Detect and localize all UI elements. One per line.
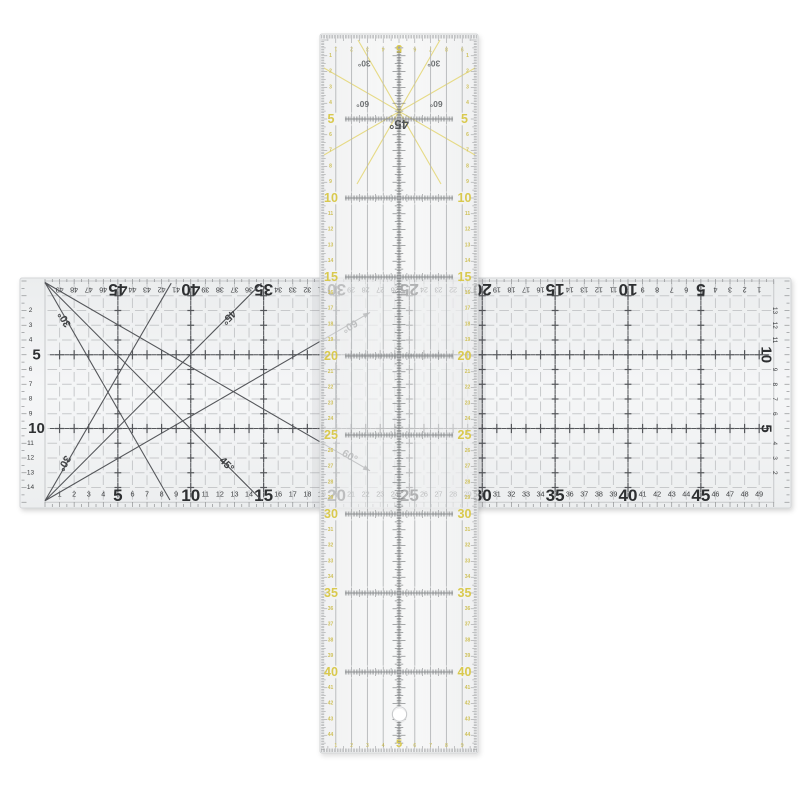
svg-text:33: 33	[289, 286, 297, 295]
svg-text:2: 2	[72, 490, 76, 499]
svg-text:1: 1	[58, 490, 62, 499]
svg-text:10: 10	[458, 191, 472, 205]
svg-text:36: 36	[465, 606, 471, 612]
svg-text:4: 4	[329, 100, 332, 106]
svg-text:39: 39	[328, 653, 334, 659]
svg-text:14: 14	[328, 258, 334, 264]
svg-text:6: 6	[466, 132, 469, 138]
svg-text:16: 16	[537, 286, 545, 295]
svg-text:41: 41	[328, 685, 334, 691]
svg-text:48: 48	[741, 490, 749, 499]
svg-text:36: 36	[328, 606, 334, 612]
svg-text:19: 19	[328, 337, 334, 343]
svg-text:40: 40	[324, 665, 338, 679]
svg-text:13: 13	[465, 242, 471, 248]
svg-text:6: 6	[413, 743, 416, 749]
svg-text:26: 26	[465, 448, 471, 454]
svg-text:11: 11	[610, 286, 617, 295]
svg-text:7: 7	[466, 148, 469, 154]
svg-text:5: 5	[328, 112, 335, 126]
svg-text:34: 34	[537, 490, 545, 499]
svg-text:20: 20	[324, 349, 338, 363]
svg-text:39: 39	[609, 490, 617, 499]
svg-text:13: 13	[27, 469, 35, 476]
svg-text:28: 28	[465, 479, 471, 485]
svg-text:43: 43	[143, 286, 151, 295]
svg-text:32: 32	[465, 543, 471, 549]
svg-text:23: 23	[465, 400, 471, 406]
svg-text:30: 30	[458, 507, 472, 521]
svg-text:25: 25	[458, 428, 472, 442]
svg-text:2: 2	[466, 69, 469, 75]
svg-text:42: 42	[653, 490, 661, 499]
svg-text:8: 8	[655, 286, 659, 295]
svg-text:31: 31	[493, 490, 501, 499]
svg-text:7: 7	[29, 381, 33, 388]
svg-text:37: 37	[230, 286, 238, 295]
svg-text:27: 27	[465, 464, 471, 470]
svg-text:17: 17	[328, 306, 334, 312]
svg-text:7: 7	[670, 286, 674, 295]
svg-text:4: 4	[713, 286, 717, 295]
svg-text:42: 42	[158, 286, 166, 295]
svg-text:16: 16	[274, 490, 282, 499]
svg-text:14: 14	[27, 484, 35, 491]
svg-text:23: 23	[328, 400, 334, 406]
svg-text:14: 14	[566, 286, 574, 295]
svg-text:43: 43	[465, 716, 471, 722]
svg-text:4: 4	[29, 337, 33, 344]
svg-text:47: 47	[85, 286, 93, 295]
svg-text:30°: 30°	[357, 59, 370, 69]
svg-text:2: 2	[771, 471, 778, 475]
svg-text:41: 41	[465, 685, 471, 691]
svg-text:4: 4	[771, 441, 778, 445]
svg-text:6: 6	[29, 366, 33, 373]
svg-text:60°: 60°	[356, 99, 369, 109]
svg-text:5: 5	[461, 112, 468, 126]
svg-text:32: 32	[328, 543, 334, 549]
svg-text:11: 11	[465, 211, 471, 217]
svg-text:31: 31	[328, 527, 334, 533]
svg-text:3: 3	[466, 84, 469, 90]
svg-text:25: 25	[324, 428, 338, 442]
svg-text:3: 3	[771, 456, 778, 460]
hang-hole	[392, 707, 406, 723]
svg-text:3: 3	[29, 322, 33, 329]
svg-text:6: 6	[684, 286, 688, 295]
svg-text:33: 33	[522, 490, 530, 499]
svg-text:5: 5	[396, 738, 402, 750]
svg-text:9: 9	[461, 46, 464, 52]
svg-text:3: 3	[366, 46, 369, 52]
svg-text:8: 8	[771, 382, 778, 386]
svg-text:9: 9	[29, 410, 33, 417]
svg-text:38: 38	[328, 637, 334, 643]
svg-text:11: 11	[27, 440, 34, 447]
svg-text:11: 11	[771, 337, 778, 344]
svg-text:8: 8	[466, 163, 469, 169]
svg-text:32: 32	[507, 490, 515, 499]
svg-text:13: 13	[328, 242, 334, 248]
svg-text:5: 5	[396, 42, 402, 54]
svg-text:5: 5	[758, 424, 775, 432]
svg-text:39: 39	[201, 286, 209, 295]
svg-text:18: 18	[465, 321, 471, 327]
svg-text:35: 35	[458, 586, 472, 600]
svg-text:7: 7	[771, 397, 778, 401]
svg-text:45°: 45°	[389, 117, 409, 132]
svg-text:1: 1	[757, 286, 761, 295]
svg-text:34: 34	[274, 286, 282, 295]
svg-text:41: 41	[172, 286, 180, 295]
svg-text:5: 5	[32, 346, 40, 363]
svg-text:19: 19	[465, 337, 471, 343]
svg-text:9: 9	[329, 179, 332, 185]
svg-text:33: 33	[328, 558, 334, 564]
svg-text:12: 12	[328, 227, 334, 233]
svg-text:7: 7	[145, 490, 149, 499]
svg-text:8: 8	[329, 163, 332, 169]
svg-text:7: 7	[429, 46, 432, 52]
svg-text:39: 39	[465, 653, 471, 659]
svg-text:11: 11	[202, 490, 209, 499]
svg-text:8: 8	[445, 46, 448, 52]
svg-text:2: 2	[329, 69, 332, 75]
svg-text:6: 6	[130, 490, 134, 499]
svg-text:8: 8	[445, 743, 448, 749]
svg-text:46: 46	[99, 286, 107, 295]
svg-text:8: 8	[29, 396, 33, 403]
svg-text:13: 13	[230, 490, 238, 499]
svg-text:6: 6	[771, 412, 778, 416]
svg-text:2: 2	[350, 46, 353, 52]
svg-text:10: 10	[28, 420, 45, 437]
svg-text:2: 2	[743, 286, 747, 295]
svg-text:37: 37	[328, 622, 334, 628]
svg-text:12: 12	[216, 490, 224, 499]
svg-text:14: 14	[465, 258, 471, 264]
svg-text:2: 2	[350, 743, 353, 749]
svg-text:44: 44	[682, 490, 690, 499]
svg-text:42: 42	[328, 701, 334, 707]
svg-text:18: 18	[303, 490, 311, 499]
svg-text:18: 18	[328, 321, 334, 327]
svg-text:22: 22	[328, 385, 334, 391]
svg-text:15: 15	[324, 270, 338, 284]
svg-text:43: 43	[668, 490, 676, 499]
svg-text:4: 4	[382, 46, 385, 52]
svg-text:15: 15	[458, 270, 472, 284]
svg-text:1: 1	[334, 46, 337, 52]
svg-text:47: 47	[726, 490, 734, 499]
svg-text:13: 13	[771, 307, 778, 315]
svg-text:30°: 30°	[427, 59, 440, 69]
svg-text:38: 38	[216, 286, 224, 295]
svg-text:1: 1	[466, 53, 469, 59]
svg-text:12: 12	[465, 227, 471, 233]
svg-text:9: 9	[174, 490, 178, 499]
svg-text:22: 22	[465, 385, 471, 391]
svg-text:9: 9	[466, 179, 469, 185]
svg-text:11: 11	[328, 211, 334, 217]
svg-text:17: 17	[465, 306, 471, 312]
svg-text:37: 37	[580, 490, 588, 499]
svg-text:9: 9	[461, 743, 464, 749]
svg-text:6: 6	[413, 46, 416, 52]
svg-text:29: 29	[328, 495, 334, 501]
svg-text:38: 38	[465, 637, 471, 643]
svg-text:27: 27	[328, 464, 334, 470]
svg-text:12: 12	[27, 455, 35, 462]
svg-text:17: 17	[522, 286, 530, 295]
svg-text:31: 31	[465, 527, 471, 533]
svg-text:4: 4	[466, 100, 469, 106]
svg-text:40: 40	[458, 665, 472, 679]
svg-text:3: 3	[366, 743, 369, 749]
svg-text:49: 49	[755, 490, 763, 499]
svg-text:35: 35	[324, 586, 338, 600]
svg-text:38: 38	[595, 490, 603, 499]
svg-text:9: 9	[771, 368, 778, 372]
svg-text:12: 12	[771, 322, 778, 330]
svg-text:13: 13	[580, 286, 588, 295]
svg-text:20: 20	[458, 349, 472, 363]
svg-text:3: 3	[728, 286, 732, 295]
svg-text:34: 34	[465, 574, 471, 580]
svg-text:24: 24	[328, 416, 334, 422]
svg-text:7: 7	[329, 148, 332, 154]
svg-text:36: 36	[566, 490, 574, 499]
svg-text:34: 34	[328, 574, 334, 580]
svg-text:21: 21	[465, 369, 471, 375]
svg-text:2: 2	[29, 307, 33, 314]
svg-text:7: 7	[429, 743, 432, 749]
svg-text:21: 21	[328, 369, 334, 375]
svg-text:28: 28	[328, 479, 334, 485]
svg-text:9: 9	[641, 286, 645, 295]
svg-text:4: 4	[101, 490, 105, 499]
svg-text:30: 30	[324, 507, 338, 521]
svg-text:12: 12	[595, 286, 603, 295]
svg-text:6: 6	[329, 132, 332, 138]
ruler-product-photo: 1492483474465456447438429411040113912381…	[0, 0, 800, 800]
svg-text:26: 26	[328, 448, 334, 454]
scene-svg: 1492483474465456447438429411040113912381…	[0, 0, 800, 800]
svg-text:16: 16	[328, 290, 334, 296]
svg-text:4: 4	[382, 743, 385, 749]
svg-text:1: 1	[334, 743, 337, 749]
svg-text:16: 16	[465, 290, 471, 296]
svg-text:33: 33	[465, 558, 471, 564]
svg-text:3: 3	[329, 84, 332, 90]
svg-text:3: 3	[87, 490, 91, 499]
svg-text:32: 32	[303, 286, 311, 295]
svg-text:10: 10	[324, 191, 338, 205]
svg-text:17: 17	[289, 490, 297, 499]
svg-text:8: 8	[160, 490, 164, 499]
svg-text:19: 19	[493, 286, 501, 295]
svg-text:60°: 60°	[429, 99, 442, 109]
svg-text:24: 24	[465, 416, 471, 422]
svg-text:29: 29	[465, 495, 471, 501]
svg-text:42: 42	[465, 701, 471, 707]
svg-text:10: 10	[758, 346, 775, 363]
svg-text:44: 44	[465, 732, 471, 738]
svg-text:1: 1	[329, 53, 332, 59]
svg-text:44: 44	[328, 732, 334, 738]
svg-text:18: 18	[507, 286, 515, 295]
svg-text:44: 44	[128, 286, 136, 295]
svg-text:43: 43	[328, 716, 334, 722]
svg-text:48: 48	[70, 286, 78, 295]
svg-text:37: 37	[465, 622, 471, 628]
svg-text:41: 41	[639, 490, 647, 499]
svg-text:46: 46	[711, 490, 719, 499]
